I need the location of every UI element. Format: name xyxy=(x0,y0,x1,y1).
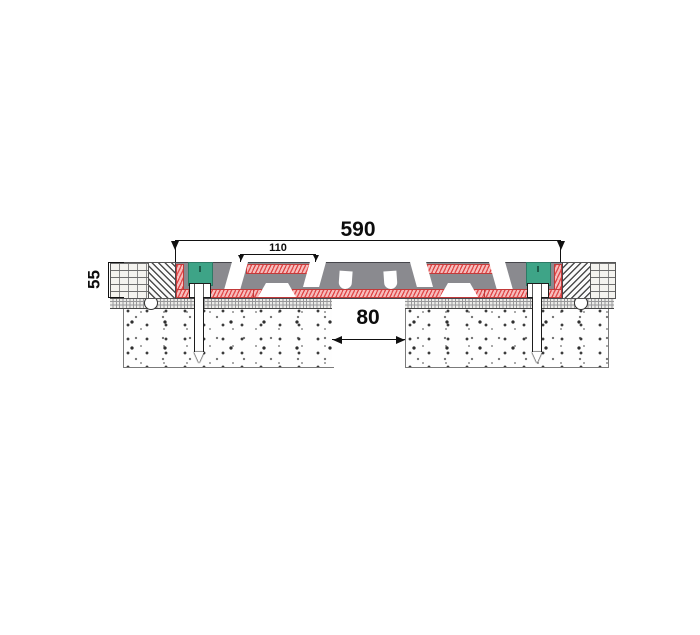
bolt-head-facet xyxy=(203,284,204,297)
dim-110-arrow-left xyxy=(238,255,244,261)
bedding-hatch-left xyxy=(148,262,177,299)
dim-590-arrow-left xyxy=(171,241,179,250)
anchor-bolt-left-tip xyxy=(194,352,204,363)
dim-80-arrow-right xyxy=(396,336,405,344)
edge-seal-left-horizontal xyxy=(176,289,254,298)
centre-notch-right xyxy=(383,271,397,290)
anchor-bolt-right-shaft xyxy=(532,297,542,352)
insert-width-dimension: 110 xyxy=(258,243,298,254)
bedding-hatch-right xyxy=(561,262,592,299)
joint-gap-dimension: 80 xyxy=(348,307,388,328)
anchor-block-left-mark xyxy=(199,266,201,272)
anchor-block-right-mark xyxy=(537,266,539,272)
bolt-head-facet xyxy=(532,284,533,297)
anchor-bolt-right-tip xyxy=(532,352,542,363)
dim-80-arrow-left xyxy=(333,336,342,344)
dim-80-line xyxy=(332,339,405,340)
concrete-slab-right xyxy=(405,307,609,368)
dim-55-tick-bottom xyxy=(108,297,124,298)
dim-55-line xyxy=(108,262,109,298)
drawing-canvas: 590 110 55 80 xyxy=(0,0,700,635)
dim-55-tick-top xyxy=(108,262,124,263)
floor-finish-left xyxy=(110,262,150,299)
dim-110-line xyxy=(240,254,316,255)
floor-finish-right xyxy=(590,262,616,299)
overall-width-dimension: 590 xyxy=(334,219,382,240)
anti-slip-insert-left xyxy=(246,264,313,274)
concrete-slab-left xyxy=(123,307,334,368)
bolt-head-facet xyxy=(541,284,542,297)
bolt-head-facet xyxy=(194,284,195,297)
edge-seal-right-horizontal xyxy=(484,289,562,298)
dim-590-arrow-right xyxy=(557,241,565,250)
recess-depth-dimension: 55 xyxy=(86,268,103,292)
anchor-bolt-right-head xyxy=(527,283,549,298)
anchor-bolt-left-shaft xyxy=(194,297,204,352)
anti-slip-insert-right xyxy=(426,264,493,274)
anchor-bolt-left-head xyxy=(189,283,211,298)
dim-110-arrow-right xyxy=(313,255,319,261)
